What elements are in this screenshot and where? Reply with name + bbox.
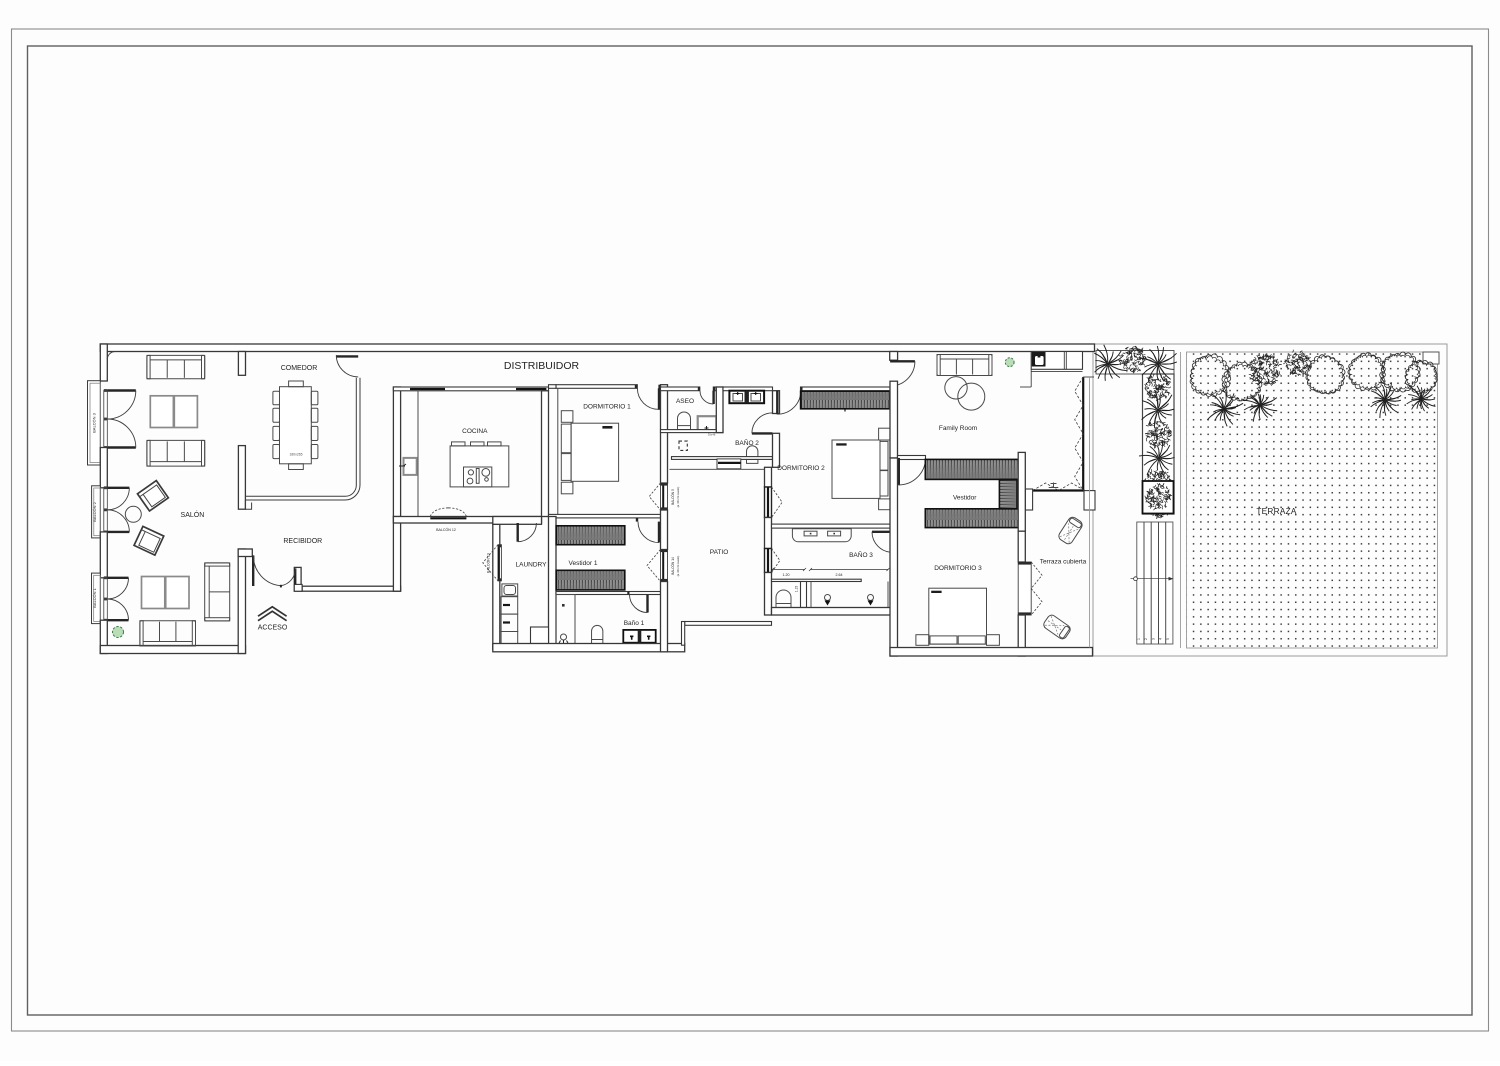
svg-text:1: 1: [1137, 638, 1141, 640]
svg-text:LAUNDRY: LAUNDRY: [516, 562, 548, 569]
svg-text:4: 4: [1159, 638, 1163, 640]
svg-text:3: 3: [1151, 638, 1155, 640]
svg-text:BALCÓN 3: BALCÓN 3: [92, 412, 97, 433]
svg-text:Family Room: Family Room: [939, 425, 977, 432]
svg-text:5: 5: [1166, 638, 1170, 640]
svg-text:(a 40 cm suelo): (a 40 cm suelo): [676, 487, 680, 508]
svg-text:ASEO: ASEO: [676, 398, 694, 405]
svg-text:30x48: 30x48: [708, 433, 716, 437]
svg-text:DORMITORIO 2: DORMITORIO 2: [777, 465, 825, 472]
svg-text:1.15: 1.15: [795, 586, 799, 593]
svg-text:2: 2: [1144, 638, 1148, 640]
svg-text:Vestidor: Vestidor: [953, 495, 977, 502]
svg-text:BAÑO 3: BAÑO 3: [849, 550, 873, 559]
svg-text:BALCÓN 14: BALCÓN 14: [670, 557, 675, 575]
svg-text:BAÑO 2: BAÑO 2: [735, 438, 759, 447]
svg-text:TERRAZA: TERRAZA: [1256, 507, 1297, 516]
svg-text:2.64: 2.64: [836, 573, 843, 577]
svg-text:RECIBIDOR: RECIBIDOR: [283, 538, 322, 545]
svg-text:BALCÓN 2: BALCÓN 2: [92, 501, 97, 522]
svg-text:PATIO: PATIO: [710, 549, 729, 556]
svg-text:Baño 1: Baño 1: [624, 620, 645, 627]
svg-text:BALCÓN 13: BALCÓN 13: [486, 553, 491, 573]
svg-text:Terraza cubierta: Terraza cubierta: [1040, 559, 1087, 566]
svg-text:COCINA: COCINA: [462, 428, 488, 435]
svg-text:ACCESO: ACCESO: [258, 625, 288, 632]
svg-text:BALCÓN 12: BALCÓN 12: [436, 527, 456, 532]
svg-text:SALÓN: SALÓN: [181, 510, 205, 519]
svg-text:DORMITORIO 1: DORMITORIO 1: [583, 404, 631, 411]
svg-text:Vestidor 1: Vestidor 1: [569, 560, 598, 567]
svg-text:DISTRIBUIDOR: DISTRIBUIDOR: [504, 360, 580, 372]
svg-text:BALCÓN 5: BALCÓN 5: [670, 489, 675, 505]
svg-text:180x265: 180x265: [289, 453, 302, 457]
svg-text:1.20: 1.20: [783, 573, 790, 577]
svg-text:BALCÓN 1: BALCÓN 1: [92, 587, 97, 608]
svg-text:COMEDOR: COMEDOR: [281, 365, 318, 372]
svg-text:DORMITORIO 3: DORMITORIO 3: [934, 565, 982, 572]
svg-text:(a 40 cm suelo): (a 40 cm suelo): [676, 556, 680, 577]
